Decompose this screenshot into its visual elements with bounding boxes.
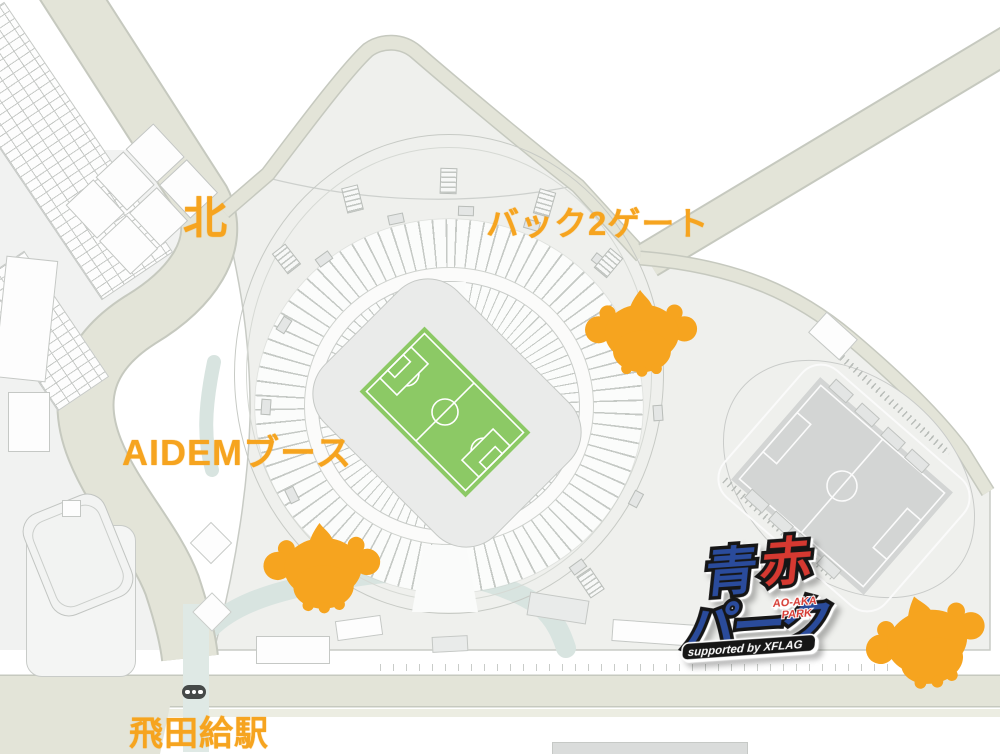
arena-annex [62, 500, 81, 517]
aoaka-park-logo: 青 赤 パーク AO-AKA PARK supported by XFLAG [665, 526, 850, 674]
label-back2-gate: バック2ゲート [486, 197, 709, 245]
label-aidem-booth: AIDEMブース [122, 424, 352, 476]
logo-subtitle-line2: PARK [781, 607, 813, 621]
west-building-small [8, 392, 50, 452]
logo-kanji-blue: 青 [702, 542, 760, 604]
railside-building [552, 742, 748, 754]
back2-gate-marker [524, 243, 646, 337]
south-building [256, 636, 330, 664]
label-north: 北 [183, 182, 228, 246]
logo-kanji-red: 赤 [757, 532, 815, 594]
traffic-light-icon [182, 685, 206, 699]
aidem-booth-marker [196, 474, 327, 576]
stair-block [440, 168, 458, 195]
stadium-guide-map: 北 バック2ゲート AIDEMブース 飛田給駅 青 赤 パーク AO-AKA P… [0, 0, 1000, 754]
label-station: 飛田給駅 [129, 706, 269, 754]
south-building [432, 635, 469, 653]
kiosk [458, 206, 474, 217]
kiosk [652, 405, 663, 422]
kiosk [260, 399, 271, 416]
